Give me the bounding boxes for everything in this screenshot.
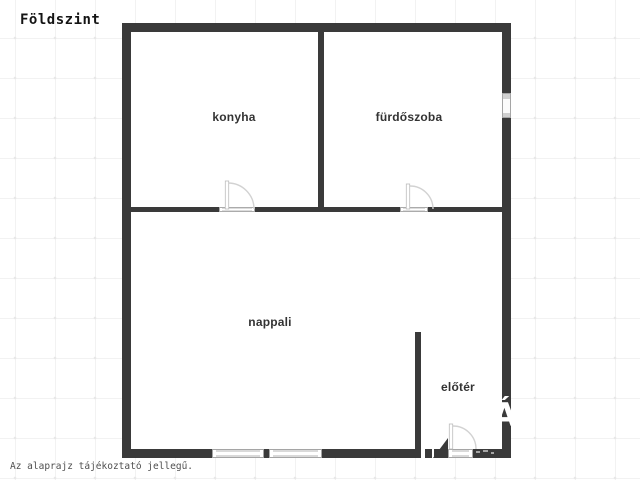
watermark-glyph: Á	[492, 399, 517, 431]
wall-gap	[421, 449, 425, 458]
room-label-eloter: előtér	[441, 380, 475, 394]
wall-konyha-furdoszoba-divider	[318, 32, 324, 207]
watermark-fragment	[483, 450, 488, 452]
furdoszoba-door-threshold	[400, 207, 428, 212]
wall-top	[122, 23, 511, 32]
window-bottom-right	[269, 449, 322, 458]
wall-left	[122, 23, 131, 458]
wall-middle-horizontal	[131, 207, 502, 212]
floorplan-page: Földszint konyha fürdőszoba nappali	[0, 0, 640, 480]
wall-gap	[432, 449, 434, 458]
room-label-konyha: konyha	[212, 110, 255, 124]
watermark-fragment	[491, 452, 494, 454]
window-right-wall	[502, 93, 511, 118]
room-label-furdoszoba: fürdőszoba	[376, 110, 443, 124]
disclaimer-note: Az alaprajz tájékoztató jellegű.	[10, 461, 193, 472]
wall-right	[502, 23, 511, 458]
wall-nappali-eloter-divider	[415, 332, 421, 449]
window-bottom-left	[212, 449, 264, 458]
konyha-door-threshold	[219, 207, 255, 212]
entry-door-threshold	[448, 449, 473, 458]
page-title: Földszint	[20, 12, 100, 28]
watermark-fragment	[476, 451, 480, 453]
room-label-nappali: nappali	[248, 315, 291, 329]
